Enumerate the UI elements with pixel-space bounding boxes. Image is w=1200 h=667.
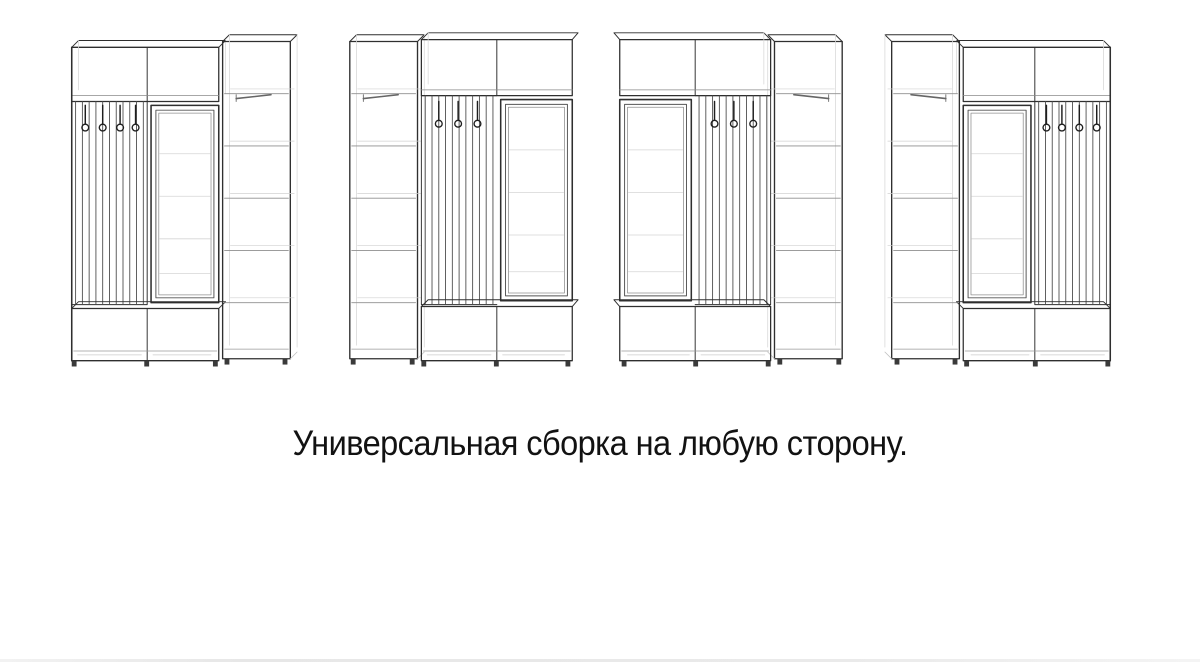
wardrobe-drawings-row [0, 26, 1200, 386]
caption-text: Универсальная сборка на любую сторону. [42, 424, 1158, 472]
wardrobe-variant-4-drawing [882, 26, 1118, 382]
wardrobe-variant-1-drawing [64, 26, 300, 382]
hallway-set-hooks-left-mirror-middle-cabinet-right-icon [64, 26, 300, 382]
wardrobe-variant-2-drawing [344, 26, 580, 382]
hallway-set-cabinet-left-hooks-middle-mirror-right-icon [344, 26, 580, 382]
product-illustration-page: Универсальная сборка на любую сторону. [0, 0, 1200, 667]
wardrobe-variant-3-drawing [612, 26, 848, 382]
hallway-set-cabinet-left-mirror-middle-hooks-right-icon [882, 26, 1118, 382]
hallway-set-mirror-left-hooks-middle-cabinet-right-icon [612, 26, 848, 382]
bottom-edge-artifact [0, 659, 1200, 662]
